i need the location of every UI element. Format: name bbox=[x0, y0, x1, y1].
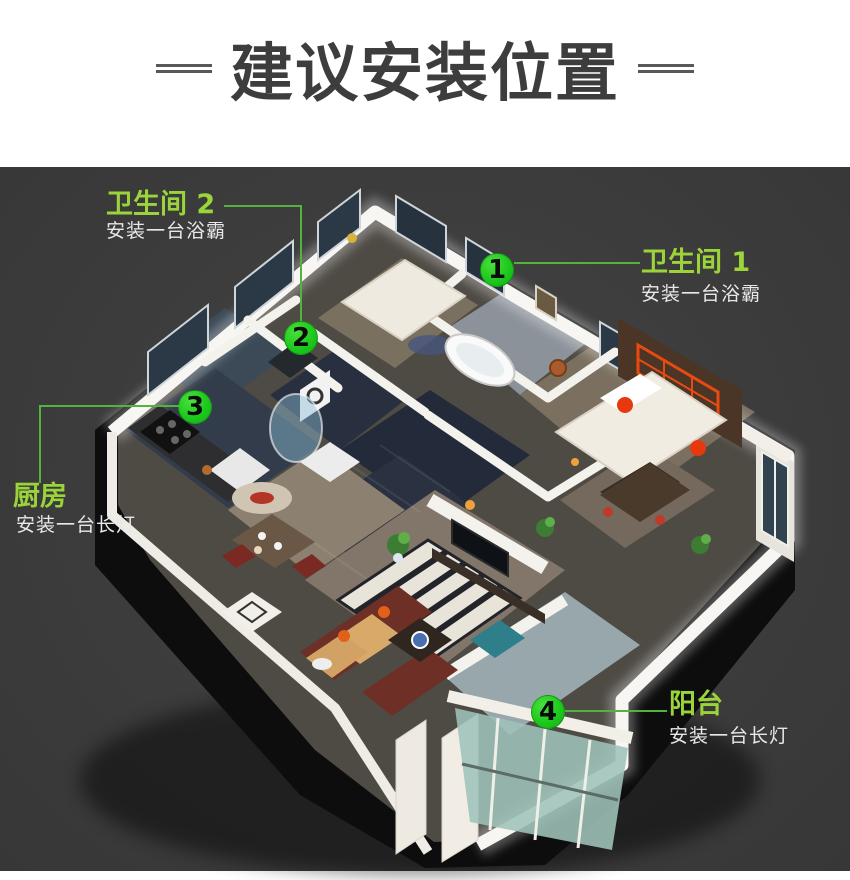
marker-circle-3: 3 bbox=[178, 390, 212, 424]
marker-number-2: 2 bbox=[292, 325, 310, 351]
leader-line-3-horizontal bbox=[40, 405, 179, 407]
install-note-kitchen: 安装一台长灯 bbox=[16, 515, 136, 537]
install-note-balcony: 安装一台长灯 bbox=[669, 726, 789, 748]
marker-circle-1: 1 bbox=[480, 253, 514, 287]
marker-number-4: 4 bbox=[539, 699, 557, 725]
install-note-bathroom-2: 安装一台浴霸 bbox=[106, 221, 226, 243]
marker-number-1: 1 bbox=[488, 257, 506, 283]
marker-circle-4: 4 bbox=[531, 695, 565, 729]
leader-line-2-horizontal bbox=[224, 205, 302, 207]
leader-line-4 bbox=[565, 710, 667, 712]
annotation-overlay: 1 卫生间 1 安装一台浴霸 卫生间 2 安装一台浴霸 2 3 厨房 安装一台长… bbox=[0, 0, 850, 880]
room-label-kitchen: 厨房 bbox=[13, 482, 67, 512]
marker-circle-2: 2 bbox=[284, 321, 318, 355]
leader-line-1 bbox=[514, 262, 640, 264]
leader-line-2-vertical bbox=[300, 205, 302, 322]
marker-number-3: 3 bbox=[186, 394, 204, 420]
room-label-bathroom-2: 卫生间 2 bbox=[106, 190, 215, 220]
room-label-balcony: 阳台 bbox=[669, 690, 723, 720]
room-label-bathroom-1: 卫生间 1 bbox=[641, 248, 750, 278]
page: 建议安装位置 bbox=[0, 0, 850, 880]
leader-line-3-vertical bbox=[39, 405, 41, 483]
install-note-bathroom-1: 安装一台浴霸 bbox=[641, 284, 761, 306]
